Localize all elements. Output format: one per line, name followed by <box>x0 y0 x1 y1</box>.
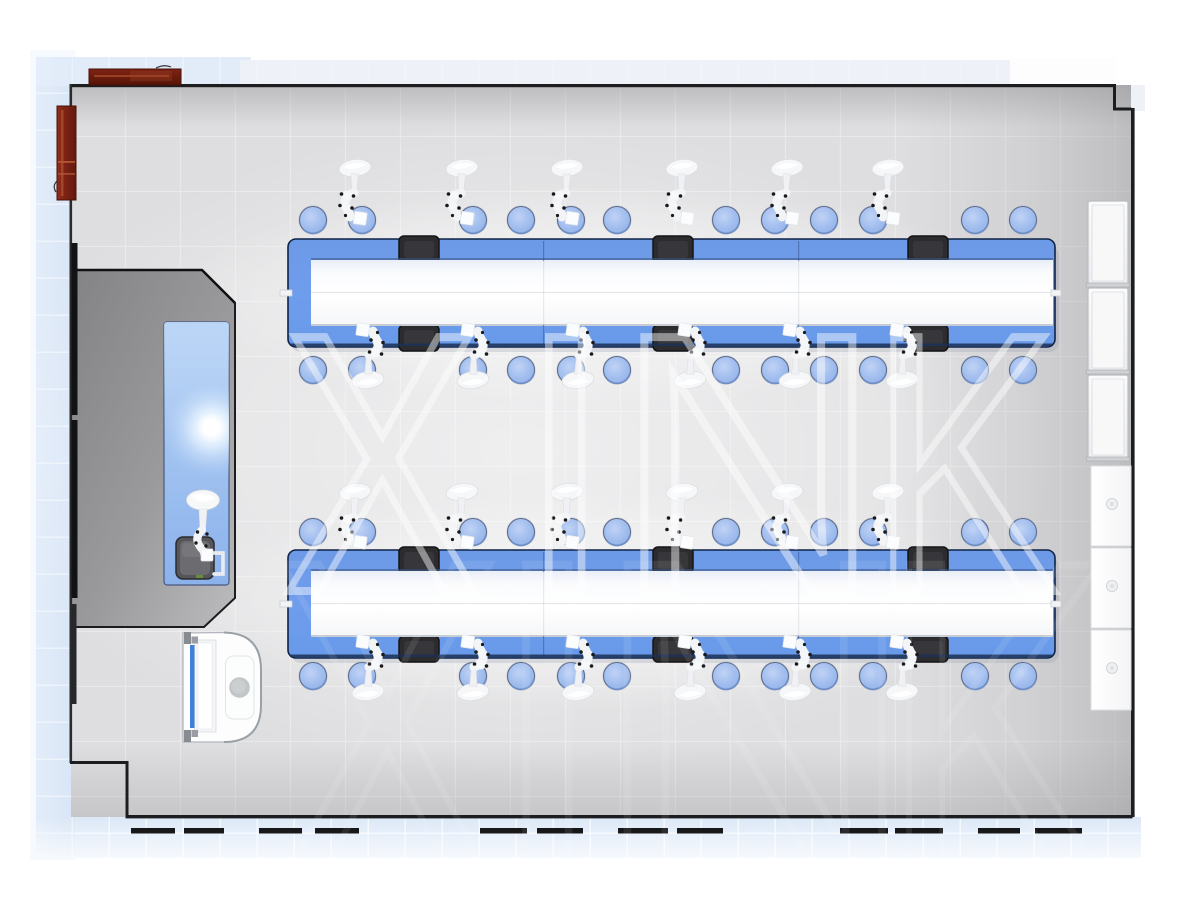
svg-text:N: N <box>590 461 919 900</box>
svg-text:X: X <box>268 462 505 900</box>
svg-text:K: K <box>880 462 1117 900</box>
